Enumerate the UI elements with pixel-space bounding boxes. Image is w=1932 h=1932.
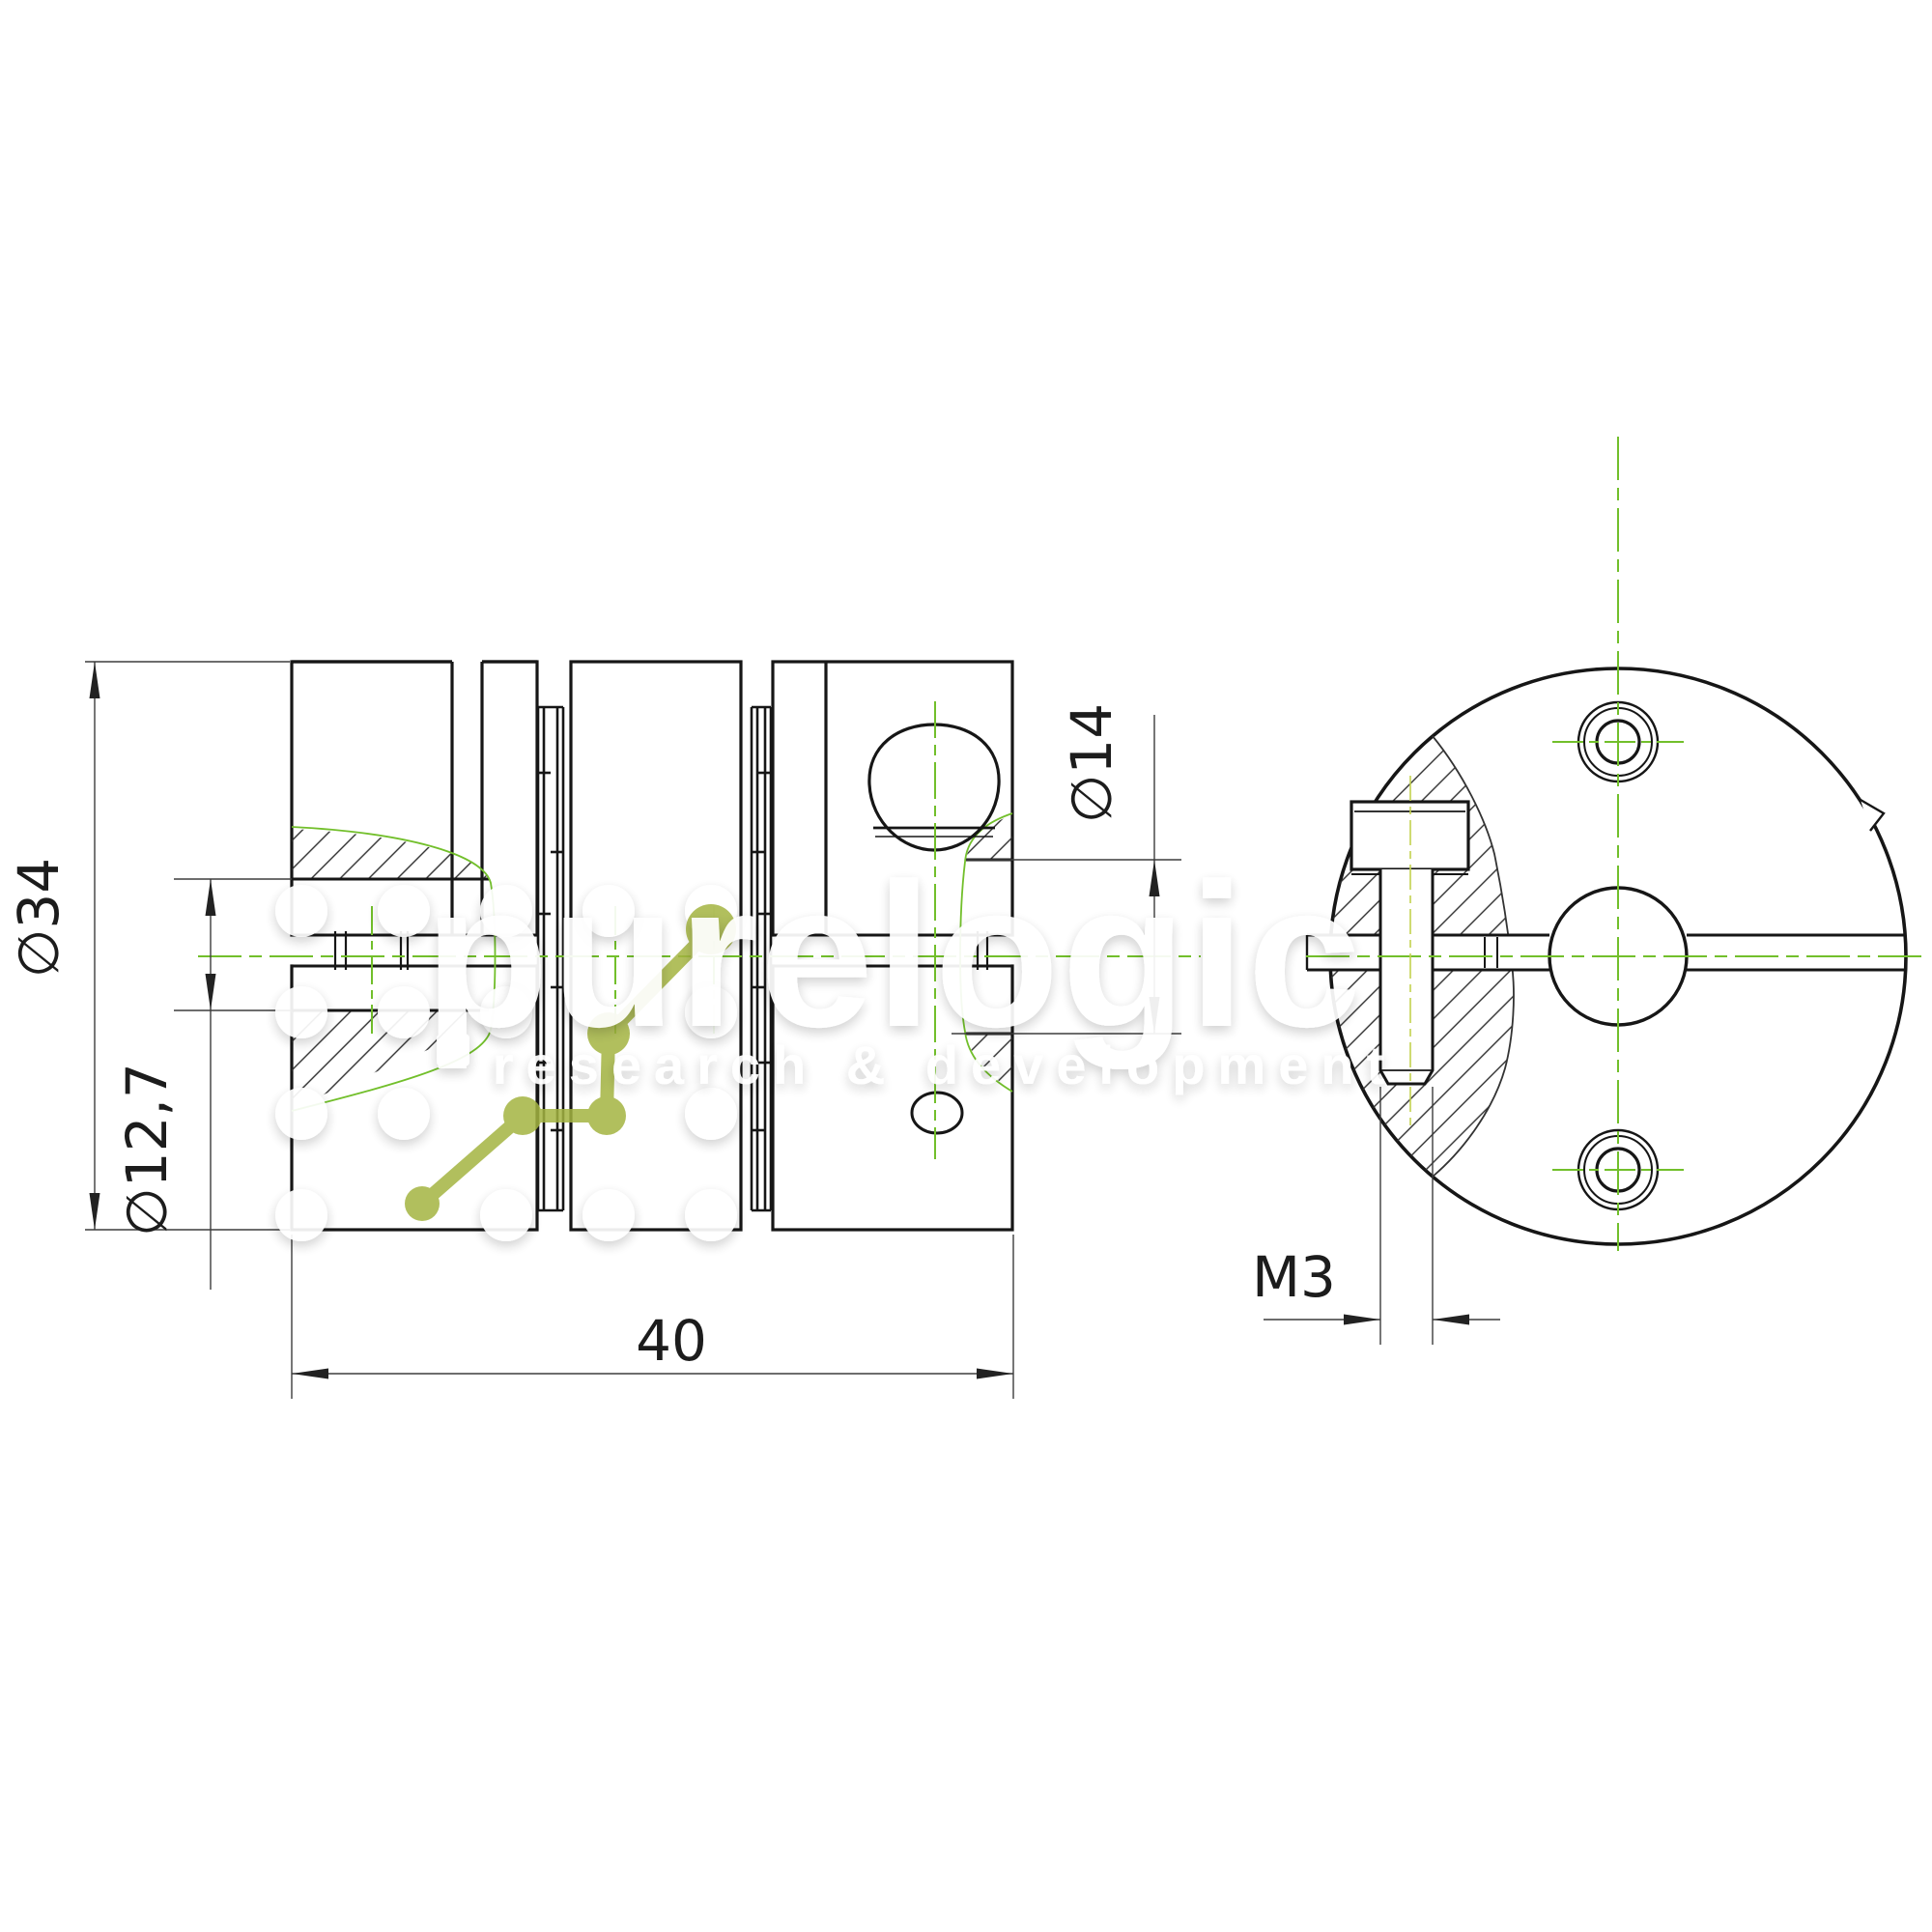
watermark-bullet: [437, 1034, 469, 1066]
watermark-layer: purelogic research & development: [0, 0, 1932, 1932]
coupling-drawing-page: ∅34 ∅12,7 ∅14 40 M3 purelogic research &: [0, 0, 1932, 1932]
watermark-tagline: research & development: [493, 1035, 1397, 1095]
